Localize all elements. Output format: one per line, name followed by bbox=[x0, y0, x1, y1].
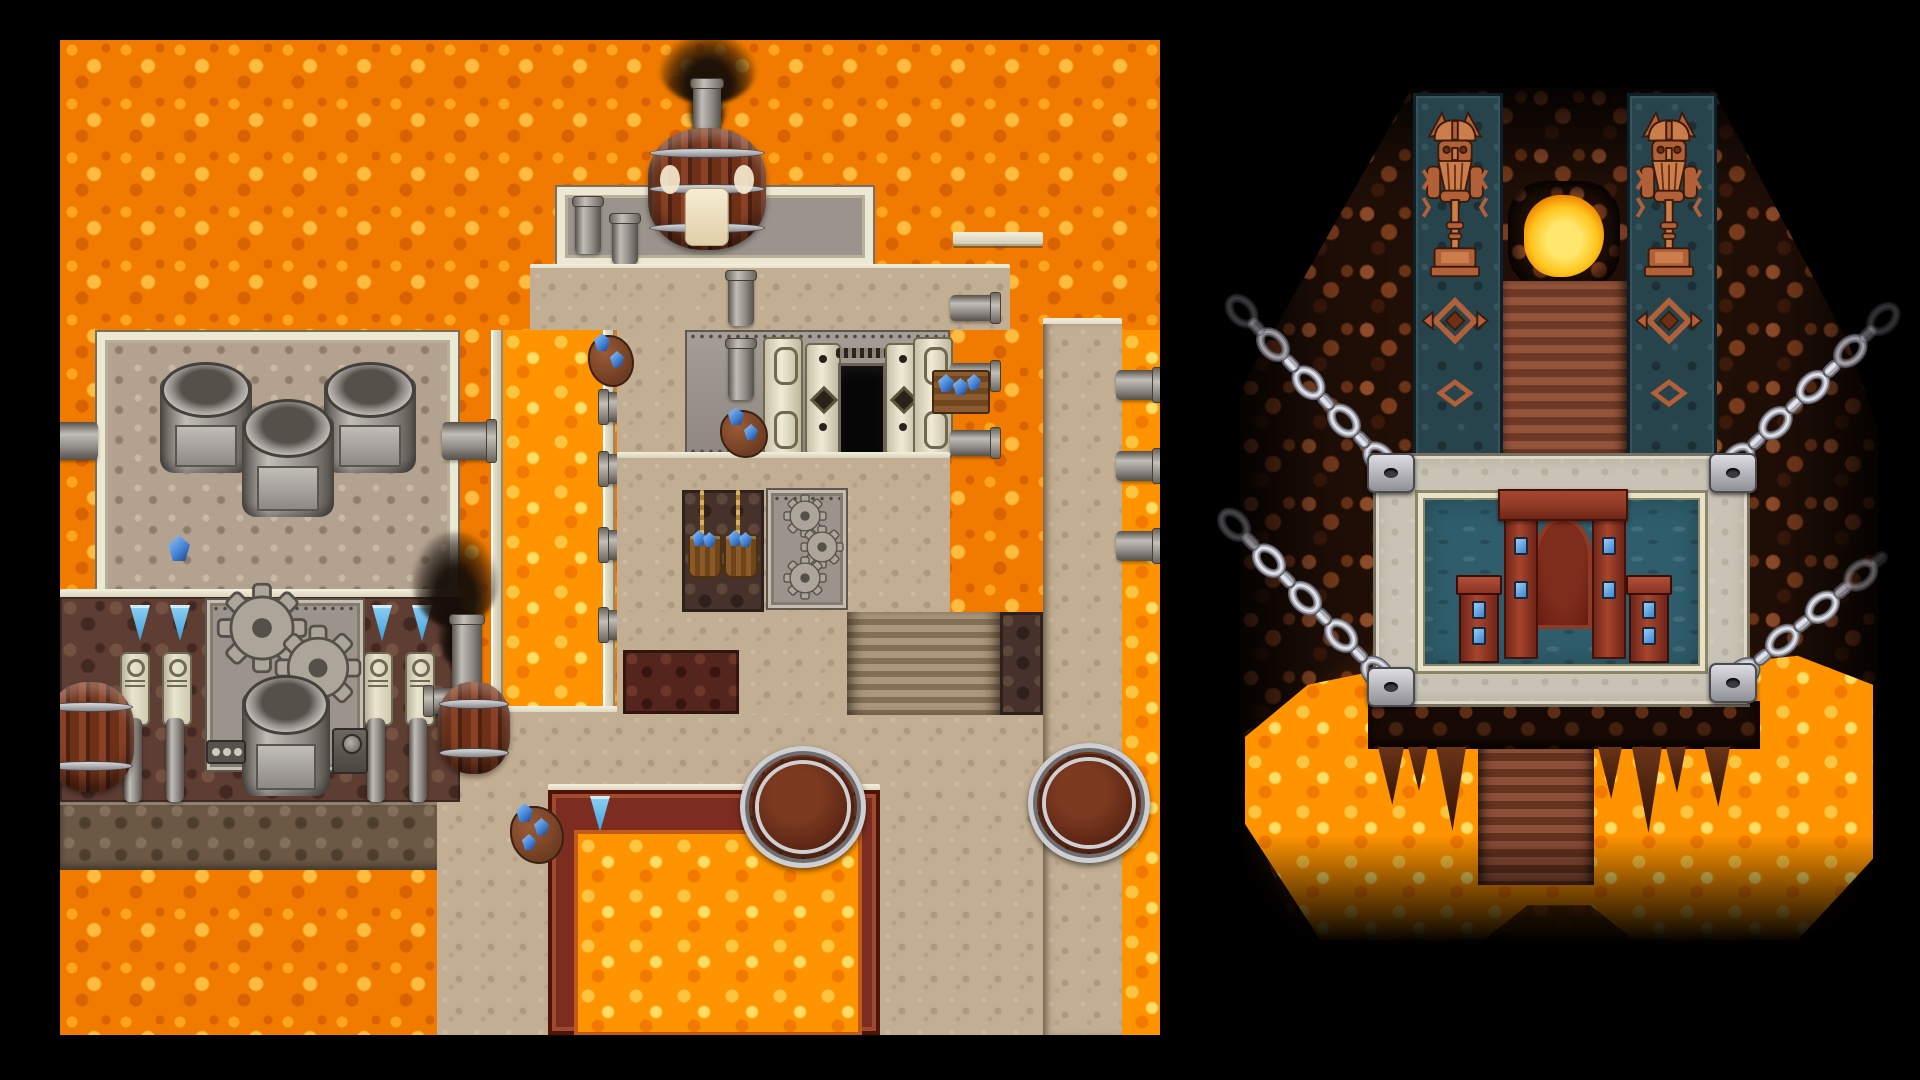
ornate-frame-pillar bbox=[763, 337, 803, 459]
control-box bbox=[332, 728, 368, 774]
pier-pipe bbox=[1116, 531, 1160, 561]
entrance-doorway bbox=[841, 366, 883, 456]
south-staircase bbox=[847, 612, 1000, 715]
chain-anchor bbox=[1367, 453, 1415, 493]
door-vent bbox=[836, 348, 886, 358]
side-pipe bbox=[442, 422, 494, 460]
chain-anchor bbox=[1367, 667, 1415, 707]
walkway-pipe bbox=[728, 272, 754, 326]
east-lava-channel bbox=[1122, 330, 1160, 1035]
roof-pipe bbox=[575, 198, 601, 254]
upper-walkway bbox=[530, 268, 1010, 330]
wall-pipe bbox=[166, 718, 184, 802]
chain-upper-right bbox=[1720, 301, 1901, 477]
side-pipe bbox=[60, 422, 98, 460]
lava-forge-map-panel bbox=[60, 40, 1160, 1035]
east-pipe bbox=[950, 430, 998, 456]
pier-pipe bbox=[1116, 451, 1160, 481]
lava-channel-center bbox=[503, 330, 603, 714]
pier-pipe bbox=[1116, 370, 1160, 400]
x-carved-pillar bbox=[805, 343, 841, 455]
crystal-crate bbox=[932, 370, 990, 414]
lava-dam-ledge bbox=[953, 232, 1043, 246]
wall-pipe bbox=[409, 718, 427, 802]
rock-ledge bbox=[60, 802, 460, 870]
roof-pipe bbox=[612, 215, 638, 265]
screenshot-stage bbox=[0, 0, 1920, 1080]
east-pier bbox=[1043, 324, 1122, 1035]
chain-anchor bbox=[1709, 453, 1757, 493]
dark-rock-patch bbox=[623, 650, 739, 714]
east-pipe bbox=[950, 295, 998, 321]
wooden-barrel bbox=[438, 682, 510, 774]
wooden-barrel bbox=[60, 682, 134, 792]
boiler-barrel bbox=[648, 128, 766, 250]
chain-anchor bbox=[1709, 663, 1757, 703]
chain-upper-left bbox=[1224, 293, 1397, 476]
wall-pipe bbox=[367, 718, 385, 802]
crystal-ore-rock bbox=[588, 335, 634, 387]
shrine-cavern-map-panel bbox=[1240, 85, 1880, 1035]
chain-lower-left bbox=[1217, 507, 1395, 691]
rooftop-vat bbox=[242, 415, 334, 517]
ore-bucket bbox=[688, 534, 722, 578]
darkness-fade bbox=[1240, 835, 1880, 975]
large-barrel bbox=[740, 746, 866, 868]
gear-icon bbox=[782, 555, 828, 601]
rock-strip bbox=[1000, 612, 1043, 715]
crystal-ore-rock bbox=[720, 410, 768, 458]
smelter-machine bbox=[242, 692, 330, 796]
large-barrel bbox=[1028, 743, 1150, 863]
ore-bucket bbox=[724, 534, 758, 578]
control-buttons bbox=[206, 740, 246, 764]
carved-pillar bbox=[162, 652, 192, 726]
facade-pipe bbox=[728, 340, 754, 400]
carved-pillar bbox=[363, 652, 393, 726]
rooftop-vat bbox=[324, 377, 416, 473]
channel-wall-left bbox=[491, 330, 503, 720]
rooftop-vat bbox=[160, 377, 252, 473]
